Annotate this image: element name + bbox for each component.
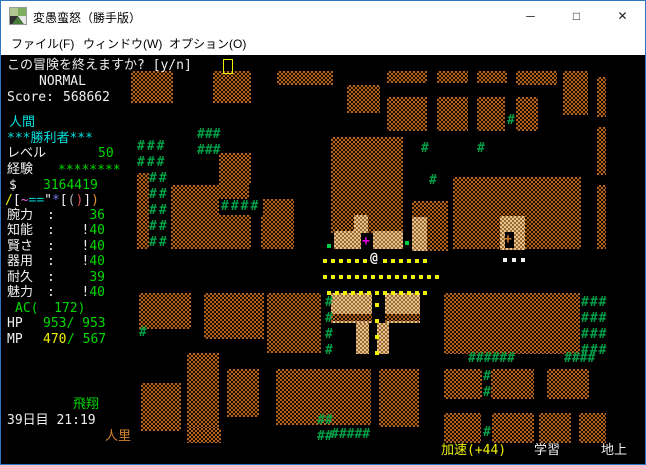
wall-dark — [213, 71, 251, 103]
close-button[interactable]: ✕ — [600, 1, 645, 31]
equipment-char: [ — [60, 193, 68, 208]
window-title: 変愚蛮怒（勝手版） — [33, 9, 141, 26]
wall-dark — [261, 199, 294, 249]
level-value: 50 — [98, 146, 114, 162]
floor-dot — [339, 259, 343, 263]
floor-dot — [359, 291, 363, 295]
floor-dot — [403, 275, 407, 279]
mp-label: MP — [7, 332, 23, 348]
status-haste: 加速(+44) — [441, 443, 506, 459]
wall-dark — [563, 71, 588, 115]
stat-row-chr: 魅力:!40 — [7, 285, 33, 301]
level-label: レベル — [7, 146, 46, 162]
wall-dark — [187, 353, 219, 429]
wall-dark — [579, 413, 606, 443]
race-label: 人間 — [9, 115, 35, 131]
floor-dot — [521, 258, 525, 262]
tree-glyph: ## — [149, 203, 169, 219]
tree-glyph: ## — [149, 235, 169, 251]
wall-lit — [356, 323, 369, 354]
wall-dark — [492, 413, 534, 443]
tree-glyph: ## — [149, 219, 169, 235]
tree-glyph: # — [483, 425, 491, 441]
class-title: ***勝利者*** — [7, 131, 93, 147]
wall-dark — [597, 127, 606, 175]
floor-dot — [355, 275, 359, 279]
tree-glyph: # — [483, 369, 491, 385]
hp-label: HP — [7, 316, 23, 332]
wall-dark — [444, 369, 482, 399]
floor-dot — [323, 275, 327, 279]
tree-glyph: # — [325, 311, 333, 327]
wall-dark — [171, 185, 251, 249]
tree-glyph: #### — [221, 199, 260, 215]
stat-label: 知能 — [7, 223, 33, 238]
exp-label: 経験 — [7, 162, 33, 178]
floor-dot — [399, 259, 403, 263]
floor-dot — [323, 259, 327, 263]
tree-glyph: ### — [581, 311, 607, 327]
floor-dot — [415, 291, 419, 295]
tree-glyph: ### — [137, 155, 166, 171]
tree-glyph: # — [429, 173, 437, 189]
tree-glyph: # — [325, 327, 333, 343]
wall-dark — [477, 71, 507, 83]
score-label: Score: — [7, 90, 54, 106]
floor-dot — [371, 275, 375, 279]
stat-value: 36 — [89, 208, 105, 223]
floor-dot — [383, 291, 387, 295]
stat-value: 40 — [89, 254, 105, 269]
floor-dot — [423, 291, 427, 295]
tree-glyph: #### — [564, 351, 595, 367]
floor-dot — [419, 275, 423, 279]
floor-dot — [375, 351, 379, 355]
floor-dot — [405, 241, 409, 245]
status-learning: 学習 — [534, 443, 560, 459]
tree-glyph: # — [139, 325, 147, 341]
tree-glyph: # — [421, 141, 429, 157]
tree-glyph: # — [325, 343, 333, 359]
wall-lit — [334, 231, 361, 249]
wall-dark — [477, 97, 505, 131]
floor-dot — [339, 275, 343, 279]
tree-glyph: ### — [137, 139, 166, 155]
stat-label: 器用 — [7, 254, 33, 269]
mp-current: 470 — [43, 332, 66, 348]
floor-dot — [391, 291, 395, 295]
location-label: 人里 — [105, 429, 131, 445]
tree-glyph: ### — [197, 143, 220, 159]
tree-glyph: # — [483, 385, 491, 401]
status-depth: 地上 — [601, 443, 627, 459]
floor-dot — [343, 291, 347, 295]
tree-glyph: # — [477, 141, 485, 157]
floor-dot — [383, 259, 387, 263]
app-window: 変愚蛮怒（勝手版） ─ □ ✕ ファイル(F) ウィンドウ(W) オプション(O… — [0, 0, 646, 465]
floor-dot — [435, 275, 439, 279]
wall-dark — [277, 71, 333, 85]
stat-row-dex: 器用:!40 — [7, 254, 33, 270]
map-opening — [249, 185, 263, 200]
wall-dark — [379, 369, 419, 427]
wall-dark — [437, 97, 468, 131]
wall-dark — [219, 153, 251, 185]
menu-bar: ファイル(F) ウィンドウ(W) オプション(O) — [1, 31, 645, 55]
wall-dark — [597, 185, 606, 249]
stat-label: 魅力 — [7, 285, 33, 300]
wall-dark — [385, 314, 420, 321]
tree-glyph: ## — [149, 171, 169, 187]
wall-dark — [131, 71, 173, 103]
wall-dark — [516, 71, 557, 85]
tree-glyph: ### — [581, 327, 607, 343]
wall-dark — [539, 413, 571, 443]
wall-dark — [547, 369, 589, 399]
wall-lit — [387, 233, 403, 249]
equipment-char: [ — [13, 193, 21, 208]
equipment-char: " — [44, 193, 52, 208]
prompt-message: この冒険を終えますか? [y/n] — [7, 58, 192, 74]
wall-dark — [331, 314, 372, 321]
door-glyph: + — [362, 234, 370, 250]
stat-value: 40 — [89, 285, 105, 300]
floor-dot — [423, 259, 427, 263]
wall-dark — [387, 97, 427, 131]
tree-glyph: ## — [149, 187, 169, 203]
hp-value: 953/ 953 — [43, 316, 106, 332]
stat-label: 耐久 — [7, 270, 33, 285]
tree-glyph: # — [325, 295, 333, 311]
ac-line: AC( 172) — [15, 301, 85, 317]
floor-dot — [375, 335, 379, 339]
game-datetime: 39日目 21:19 — [7, 413, 96, 429]
equipment-line: /[~=="*[()]) — [5, 193, 99, 209]
score-value: 568662 — [63, 90, 110, 106]
stat-row-wis: 賢さ:!40 — [7, 239, 33, 255]
status-flight: 飛翔 — [73, 397, 99, 413]
gold-value: 3164419 — [43, 178, 98, 194]
wall-dark — [187, 428, 221, 443]
floor-dot — [512, 258, 516, 262]
floor-dot — [387, 275, 391, 279]
wall-dark — [597, 77, 606, 117]
floor-dot — [375, 291, 379, 295]
floor-dot — [379, 275, 383, 279]
stat-label: 腕力 — [7, 208, 33, 223]
floor-dot — [407, 259, 411, 263]
wall-dark — [227, 369, 259, 417]
wall-dark — [139, 293, 191, 329]
exp-value: ******** — [58, 163, 121, 179]
equipment-char: * — [52, 193, 60, 208]
floor-dot — [331, 275, 335, 279]
wall-lit — [412, 217, 427, 251]
floor-dot — [411, 275, 415, 279]
door-glyph: + — [504, 232, 512, 248]
stat-value: 40 — [89, 223, 105, 238]
menu-window[interactable]: ウィンドウ(W) — [83, 35, 162, 52]
wall-dark — [204, 293, 264, 339]
equipment-char: = — [36, 193, 44, 208]
floor-dot — [327, 244, 331, 248]
wall-dark — [267, 293, 321, 353]
wall-dark — [137, 173, 149, 249]
maximize-button[interactable]: □ — [554, 1, 599, 31]
floor-dot — [391, 259, 395, 263]
equipment-char: ] — [83, 193, 91, 208]
text-cursor — [223, 59, 233, 74]
equipment-char: ) — [91, 193, 99, 208]
floor-dot — [407, 291, 411, 295]
stat-row-str: 腕力:36 — [7, 208, 33, 224]
floor-dot — [375, 319, 379, 323]
wall-dark — [387, 71, 427, 83]
menu-file[interactable]: ファイル(F) — [11, 35, 74, 52]
wall-dark — [444, 293, 580, 354]
stat-value: 40 — [89, 239, 105, 254]
tree-glyph: ###### — [468, 351, 515, 367]
wall-lit — [354, 215, 368, 233]
floor-dot — [347, 275, 351, 279]
floor-dot — [347, 259, 351, 263]
floor-dot — [351, 291, 355, 295]
mode-label: NORMAL — [39, 74, 86, 90]
app-icon — [10, 8, 26, 24]
floor-dot — [363, 275, 367, 279]
stat-row-con: 耐久:39 — [7, 270, 33, 286]
minimize-button[interactable]: ─ — [508, 1, 553, 31]
floor-dot — [415, 259, 419, 263]
title-bar: 変愚蛮怒（勝手版） ─ □ ✕ — [1, 1, 645, 31]
wall-dark — [491, 369, 534, 399]
wall-dark — [437, 71, 468, 83]
tree-glyph: ##### — [331, 427, 370, 443]
player-glyph: @ — [370, 251, 378, 267]
mp-max: / 567 — [67, 332, 106, 348]
wall-dark — [347, 85, 380, 113]
gold-symbol: $ — [9, 178, 17, 194]
floor-dot — [375, 303, 379, 307]
tree-glyph: ### — [581, 295, 607, 311]
floor-dot — [367, 291, 371, 295]
wall-dark — [516, 97, 538, 131]
equipment-char: / — [5, 193, 13, 208]
tree-glyph: ### — [197, 127, 220, 143]
stat-value: 39 — [89, 270, 105, 285]
tree-glyph: # — [507, 113, 515, 129]
wall-dark — [444, 413, 481, 443]
wall-dark — [141, 383, 181, 431]
floor-dot — [427, 275, 431, 279]
stat-row-int: 知能:!40 — [7, 223, 33, 239]
floor-dot — [363, 259, 367, 263]
floor-dot — [503, 258, 507, 262]
stat-label: 賢さ — [7, 239, 33, 254]
floor-dot — [395, 275, 399, 279]
menu-options[interactable]: オプション(O) — [169, 35, 246, 52]
floor-dot — [331, 259, 335, 263]
floor-dot — [399, 291, 403, 295]
floor-dot — [355, 259, 359, 263]
floor-dot — [327, 291, 331, 295]
floor-dot — [335, 291, 339, 295]
